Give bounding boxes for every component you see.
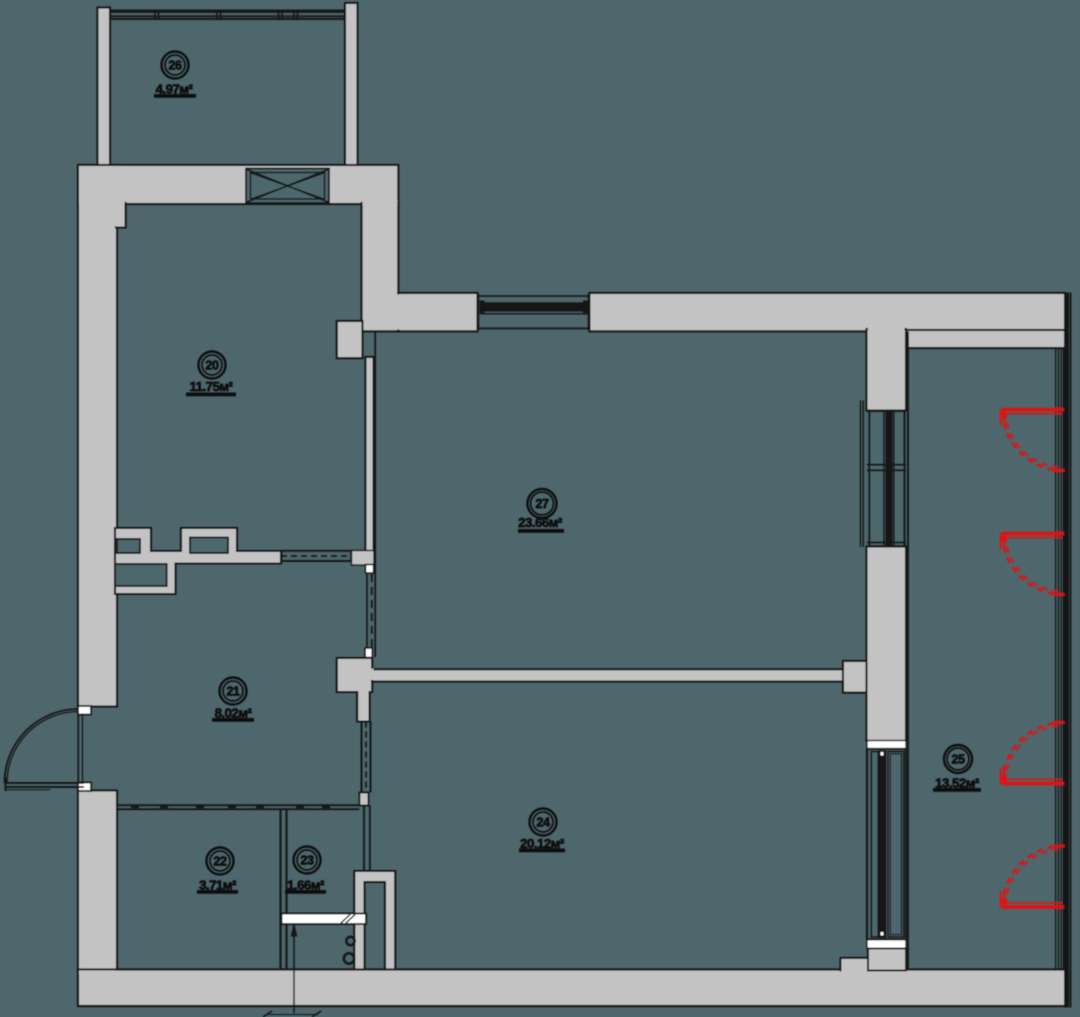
svg-text:24: 24 xyxy=(537,816,550,830)
svg-text:27: 27 xyxy=(536,497,549,511)
svg-text:23.66м²: 23.66м² xyxy=(518,515,563,530)
svg-text:20: 20 xyxy=(206,359,219,373)
svg-text:26: 26 xyxy=(169,59,182,73)
svg-text:22: 22 xyxy=(214,855,227,869)
svg-text:23: 23 xyxy=(301,854,314,868)
svg-text:11.75м²: 11.75м² xyxy=(190,379,234,394)
svg-text:25: 25 xyxy=(952,753,965,767)
svg-text:21: 21 xyxy=(227,685,240,699)
